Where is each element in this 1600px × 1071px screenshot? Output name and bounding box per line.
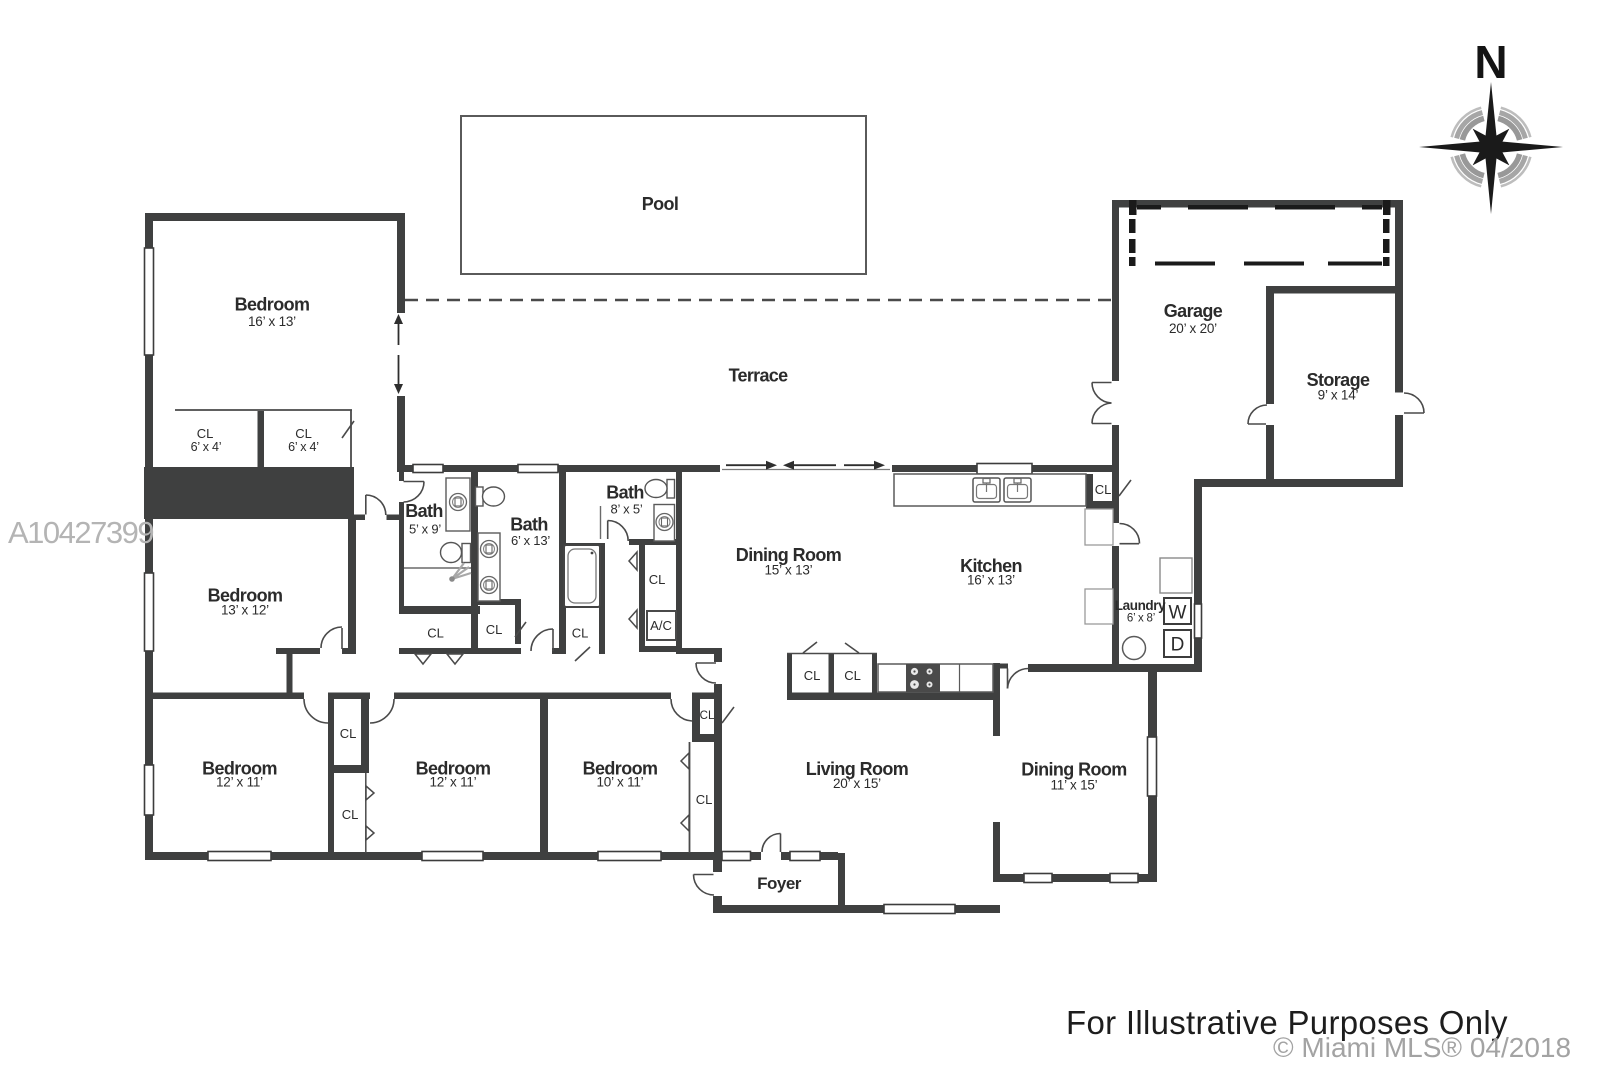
svg-text:16’ x 13’: 16’ x 13’ bbox=[967, 572, 1015, 587]
svg-text:CL: CL bbox=[340, 726, 357, 741]
svg-text:CL: CL bbox=[696, 792, 713, 807]
svg-text:12’ x 11’: 12’ x 11’ bbox=[216, 775, 263, 790]
svg-text:CL: CL bbox=[197, 426, 214, 441]
svg-text:Pool: Pool bbox=[642, 194, 679, 214]
svg-text:13’ x 12’: 13’ x 12’ bbox=[221, 603, 269, 618]
svg-text:N: N bbox=[1474, 36, 1507, 88]
svg-text:CL: CL bbox=[844, 668, 861, 683]
svg-text:6’ x 4’: 6’ x 4’ bbox=[191, 440, 222, 454]
svg-text:6’ x 8’: 6’ x 8’ bbox=[1127, 613, 1155, 625]
svg-text:Garage: Garage bbox=[1164, 301, 1223, 321]
svg-text:CL: CL bbox=[649, 572, 666, 587]
svg-text:CL: CL bbox=[486, 622, 503, 637]
svg-text:Bath: Bath bbox=[405, 501, 443, 521]
svg-text:W: W bbox=[1169, 603, 1187, 624]
svg-text:CL: CL bbox=[427, 626, 444, 641]
svg-text:20’ x 20’: 20’ x 20’ bbox=[1169, 321, 1217, 336]
svg-text:CL: CL bbox=[700, 710, 715, 722]
svg-text:15’ x 13’: 15’ x 13’ bbox=[765, 563, 813, 578]
svg-text:Dining Room: Dining Room bbox=[1021, 759, 1126, 779]
svg-text:10’ x 11’: 10’ x 11’ bbox=[597, 775, 644, 790]
svg-text:© Miami MLS® 04/2018: © Miami MLS® 04/2018 bbox=[1273, 1032, 1571, 1063]
svg-text:16’ x 13’: 16’ x 13’ bbox=[248, 314, 296, 329]
svg-text:CL: CL bbox=[572, 626, 589, 641]
svg-text:D: D bbox=[1171, 635, 1185, 656]
svg-text:Laundry: Laundry bbox=[1115, 598, 1166, 613]
svg-text:Terrace: Terrace bbox=[729, 366, 789, 386]
svg-text:A10427399: A10427399 bbox=[8, 515, 153, 550]
svg-text:11’ x 15’: 11’ x 15’ bbox=[1051, 777, 1098, 792]
svg-text:Bath: Bath bbox=[510, 514, 548, 534]
svg-text:Foyer: Foyer bbox=[757, 874, 802, 893]
svg-text:12’ x 11’: 12’ x 11’ bbox=[430, 775, 477, 790]
svg-text:Bath: Bath bbox=[606, 483, 644, 503]
svg-text:20’ x 15’: 20’ x 15’ bbox=[833, 776, 881, 791]
svg-text:CL: CL bbox=[1095, 482, 1112, 497]
svg-text:CL: CL bbox=[804, 668, 821, 683]
svg-text:9’ x 14’: 9’ x 14’ bbox=[1318, 388, 1359, 403]
svg-text:Bedroom: Bedroom bbox=[235, 295, 310, 315]
svg-text:CL: CL bbox=[342, 807, 359, 822]
svg-text:CL: CL bbox=[295, 426, 312, 441]
svg-text:A/C: A/C bbox=[650, 618, 672, 633]
svg-text:8’ x 5’: 8’ x 5’ bbox=[610, 502, 642, 517]
svg-text:6’ x 13’: 6’ x 13’ bbox=[511, 533, 550, 548]
svg-text:6’ x 4’: 6’ x 4’ bbox=[288, 440, 319, 454]
svg-text:5’ x 9’: 5’ x 9’ bbox=[409, 522, 441, 537]
